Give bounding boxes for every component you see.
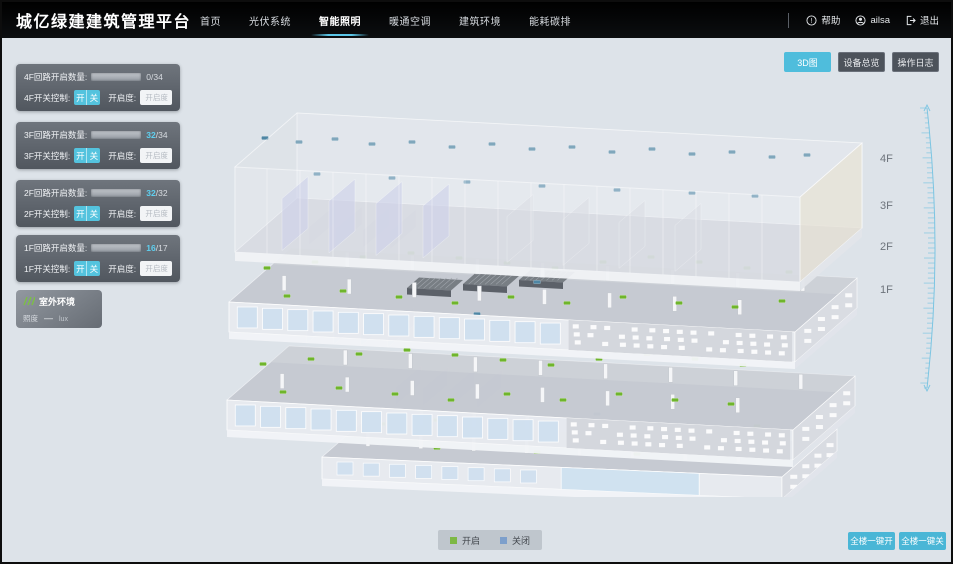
nav-item-home[interactable]: 首页 (198, 9, 223, 32)
switch-on-button[interactable]: 开 (74, 206, 87, 221)
circuit-count-label: 3F回路开启数量: (24, 129, 87, 141)
outdoor-metric-label: 照度 (23, 313, 38, 324)
help-button[interactable]: ! 帮助 (806, 13, 840, 27)
view-3d-button[interactable]: 3D图 (784, 52, 831, 72)
outdoor-env-panel: 室外环境 照度 — lux (16, 290, 102, 328)
nav-item-building-env[interactable]: 建筑环境 (457, 9, 503, 32)
circuit-progress-bar (91, 131, 141, 139)
floor-label-1f: 1F (880, 284, 904, 296)
legend-on-swatch (450, 537, 457, 544)
floor-f4 (235, 113, 862, 291)
dim-label: 开启度: (108, 92, 136, 104)
building-3d-view[interactable] (207, 92, 887, 497)
nav-item-hvac[interactable]: 暖通空调 (387, 9, 433, 32)
circuit-open-count: 32 (146, 130, 155, 140)
help-icon: ! (806, 15, 817, 26)
outdoor-metric-value: — (44, 313, 53, 323)
circuit-progress-bar (91, 244, 141, 252)
switch-on-button[interactable]: 开 (74, 90, 87, 105)
header-divider (788, 13, 789, 28)
circuit-progress-bar (91, 73, 141, 81)
circuit-total-count: /34 (151, 72, 163, 82)
dim-input[interactable] (140, 90, 172, 105)
switch-on-button[interactable]: 开 (74, 148, 87, 163)
device-overview-button[interactable]: 设备总览 (838, 52, 885, 72)
switch-control-label: 2F开关控制: (24, 208, 70, 220)
switch-off-button[interactable]: 关 (87, 206, 100, 221)
all-on-button[interactable]: 全楼一键开 (848, 532, 895, 550)
dim-label: 开启度: (108, 150, 136, 162)
dim-input[interactable] (140, 206, 172, 221)
main-nav: 首页 光伏系统 智能照明 暖通空调 建筑环境 能耗碳排 (198, 2, 573, 38)
user-avatar-icon (855, 15, 866, 26)
circuit-count-label: 2F回路开启数量: (24, 187, 87, 199)
switch-on-button[interactable]: 开 (74, 261, 87, 276)
circuit-total-count: /34 (156, 130, 168, 140)
floor-panel-2f: 2F回路开启数量: 32/32 2F开关控制: 开关 开启度: % (16, 180, 180, 227)
legend-off-swatch (500, 537, 507, 544)
dim-input[interactable] (140, 261, 172, 276)
building-actions: 全楼一键开 全楼一键关 (848, 532, 946, 550)
outdoor-env-icon (23, 296, 35, 308)
operation-log-button[interactable]: 操作日志 (892, 52, 939, 72)
dim-label: 开启度: (108, 208, 136, 220)
legend-off: 关闭 (500, 534, 530, 547)
logout-button[interactable]: 退出 (905, 13, 939, 27)
circuit-open-count: 16 (146, 243, 155, 253)
circuit-count-label: 4F回路开启数量: (24, 71, 87, 83)
all-off-button[interactable]: 全楼一键关 (899, 532, 946, 550)
outdoor-env-title: 室外环境 (39, 295, 75, 308)
light-state-legend: 开启 关闭 (438, 530, 542, 550)
circuit-count-label: 1F回路开启数量: (24, 242, 87, 254)
floor-label-4f: 4F (880, 153, 904, 165)
circuit-total-count: /17 (156, 243, 168, 253)
switch-control-label: 4F开关控制: (24, 92, 70, 104)
logout-icon (905, 15, 916, 26)
top-navigation-bar: 城亿绿建建筑管理平台 首页 光伏系统 智能照明 暖通空调 建筑环境 能耗碳排 !… (2, 2, 951, 38)
username: ailsa (870, 15, 890, 26)
floor-panel-4f: 4F回路开启数量: 0/34 4F开关控制: 开关 开启度: % (16, 64, 180, 111)
user-menu[interactable]: ailsa (855, 15, 890, 26)
circuit-total-count: /32 (156, 188, 168, 198)
nav-item-pv-system[interactable]: 光伏系统 (247, 9, 293, 32)
floor-panel-3f: 3F回路开启数量: 32/34 3F开关控制: 开关 开启度: % (16, 122, 180, 169)
floor-panel-1f: 1F回路开启数量: 16/17 1F开关控制: 开关 开启度: % (16, 235, 180, 282)
switch-control-label: 3F开关控制: (24, 150, 70, 162)
floor-zoom-ruler[interactable] (912, 98, 950, 398)
svg-text:!: ! (811, 17, 813, 24)
floor-label-2f: 2F (880, 241, 904, 253)
outdoor-metric-unit: lux (59, 316, 68, 323)
circuit-open-count: 32 (146, 188, 155, 198)
nav-item-energy-carbon[interactable]: 能耗碳排 (527, 9, 573, 32)
floor-label-3f: 3F (880, 200, 904, 212)
legend-on: 开启 (450, 534, 480, 547)
switch-off-button[interactable]: 关 (87, 90, 100, 105)
user-cluster: ! 帮助 ailsa 退出 (788, 2, 939, 38)
switch-off-button[interactable]: 关 (87, 148, 100, 163)
app-screen: 城亿绿建建筑管理平台 首页 光伏系统 智能照明 暖通空调 建筑环境 能耗碳排 !… (0, 0, 953, 564)
switch-off-button[interactable]: 关 (87, 261, 100, 276)
dim-input[interactable] (140, 148, 172, 163)
view-switcher: 3D图 设备总览 操作日志 (784, 52, 939, 72)
switch-control-label: 1F开关控制: (24, 263, 70, 275)
dim-label: 开启度: (108, 263, 136, 275)
circuit-progress-bar (91, 189, 141, 197)
app-title: 城亿绿建建筑管理平台 (16, 8, 191, 32)
nav-item-smart-lighting[interactable]: 智能照明 (317, 9, 363, 32)
